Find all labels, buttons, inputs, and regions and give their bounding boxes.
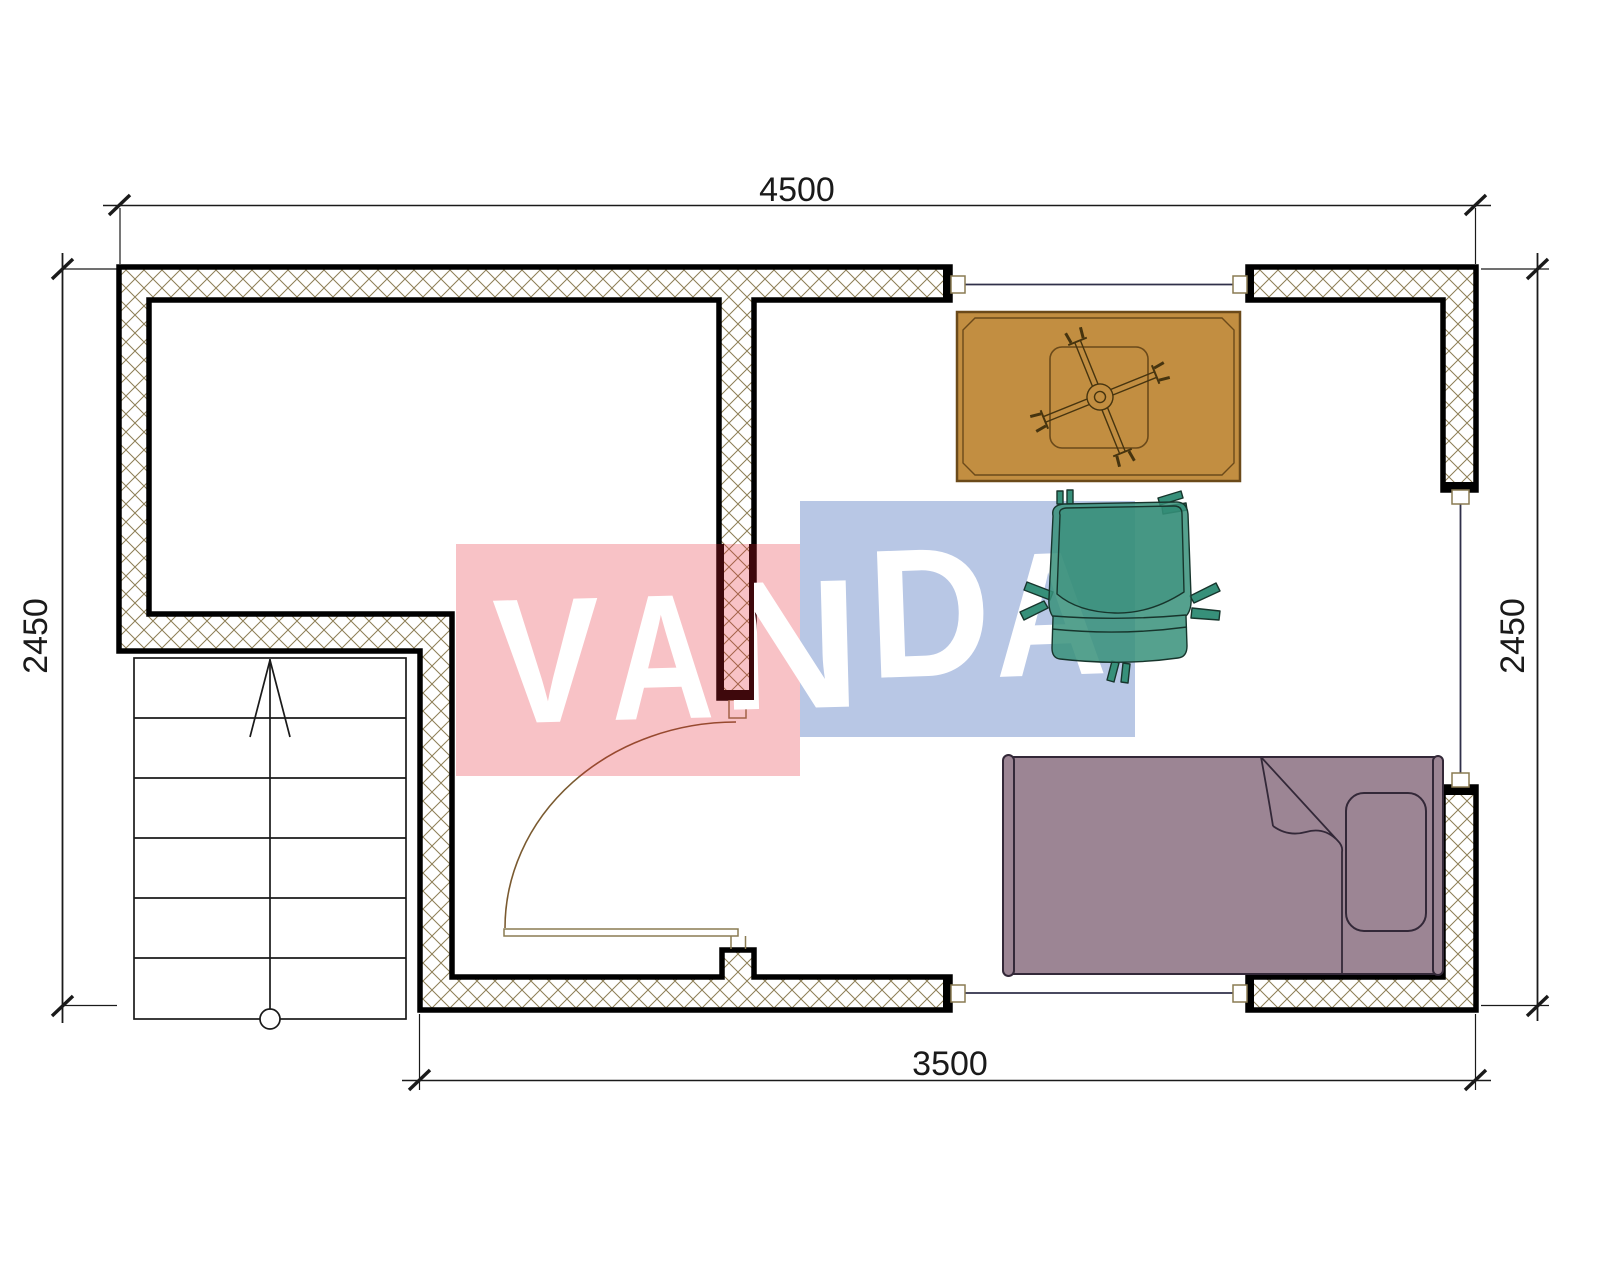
svg-text:2450: 2450 [1494, 598, 1532, 674]
svg-text:V: V [491, 560, 603, 762]
svg-text:4500: 4500 [759, 171, 835, 209]
svg-text:3500: 3500 [912, 1045, 988, 1083]
svg-text:A: A [608, 557, 716, 758]
svg-text:2450: 2450 [17, 598, 55, 674]
svg-text:D: D [864, 509, 994, 718]
